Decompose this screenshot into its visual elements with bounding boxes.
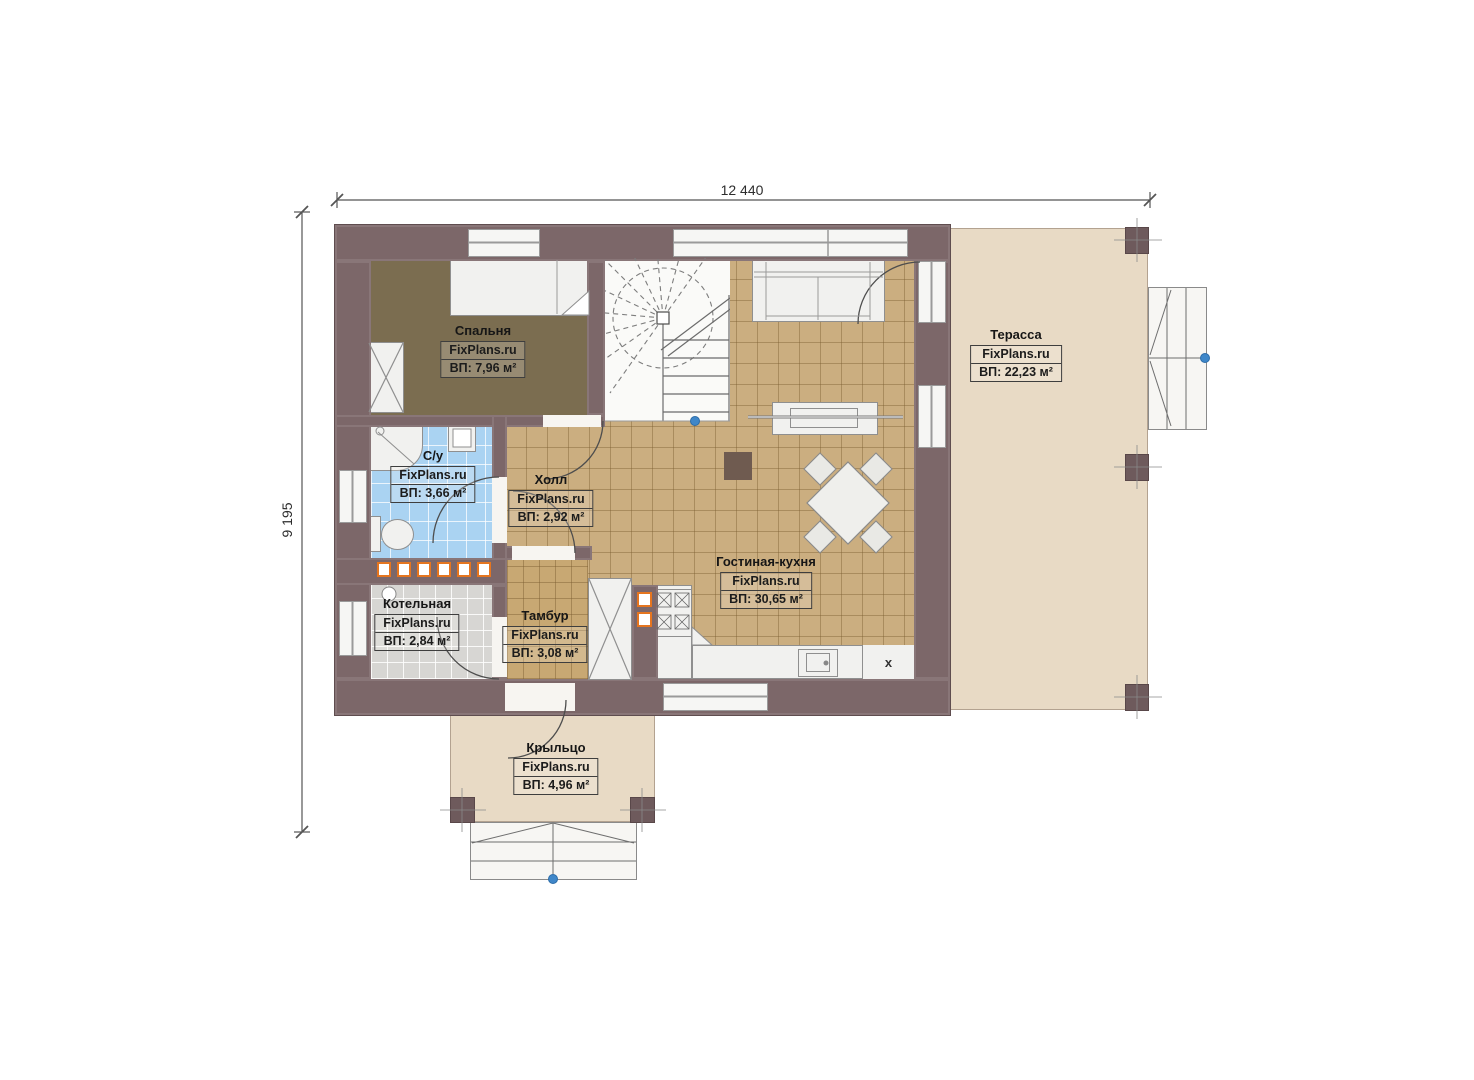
room-area: ВП: 2,84 м² (375, 633, 458, 650)
bathroom-door-gap (492, 477, 507, 543)
kitchen-sink-basin (806, 653, 830, 672)
dimension-height: 9 195 (279, 502, 295, 537)
wall-bottom (335, 679, 950, 715)
room-info-box: FixPlans.ru ВП: 4,96 м² (513, 758, 598, 795)
fridge-marker: x (862, 645, 914, 679)
room-label-living-kitchen: Гостиная-кухня FixPlans.ru ВП: 30,65 м² (716, 554, 816, 609)
room-info-box: FixPlans.ru ВП: 22,23 м² (970, 345, 1062, 382)
entrance-door-gap (505, 683, 575, 711)
dimension-width: 12 440 (721, 182, 764, 198)
porch-stairs (470, 822, 637, 880)
radiator-segment (637, 592, 652, 607)
window (663, 683, 768, 711)
room-brand: FixPlans.ru (721, 573, 811, 591)
radiator-segment (417, 562, 431, 577)
room-area: ВП: 3,66 м² (391, 485, 474, 502)
room-name: Тамбур (521, 608, 568, 623)
room-label-terrace: Терасса FixPlans.ru ВП: 22,23 м² (970, 327, 1062, 382)
room-name: С/у (423, 448, 443, 463)
room-label-bathroom: С/у FixPlans.ru ВП: 3,66 м² (390, 448, 475, 503)
room-name: Терасса (990, 327, 1042, 342)
bed (450, 258, 590, 316)
room-info-box: FixPlans.ru ВП: 2,92 м² (508, 490, 593, 527)
room-info-box: FixPlans.ru ВП: 3,66 м² (390, 466, 475, 503)
window (468, 229, 540, 257)
room-area: ВП: 4,96 м² (514, 777, 597, 794)
floor-hatch (724, 452, 752, 480)
fridge-marker-label: x (885, 655, 892, 670)
room-label-bedroom: Спальня FixPlans.ru ВП: 7,96 м² (440, 323, 525, 378)
room-name: Спальня (455, 323, 511, 338)
room-info-box: FixPlans.ru ВП: 3,08 м² (502, 626, 587, 663)
terrace-door-leaf (918, 261, 946, 323)
terrace-stairs (1148, 287, 1207, 430)
window (339, 601, 367, 656)
window (339, 470, 367, 523)
terrace-column (1126, 685, 1148, 710)
room-area: ВП: 22,23 м² (971, 364, 1061, 381)
room-area: ВП: 7,96 м² (441, 360, 524, 377)
room-label-hall: Холл FixPlans.ru ВП: 2,92 м² (508, 472, 593, 527)
radiator-segment (437, 562, 451, 577)
room-brand: FixPlans.ru (509, 491, 592, 509)
room-brand: FixPlans.ru (375, 615, 458, 633)
room-brand: FixPlans.ru (441, 342, 524, 360)
sofa (752, 260, 885, 322)
room-name: Холл (535, 472, 568, 487)
room-brand: FixPlans.ru (971, 346, 1061, 364)
room-info-box: FixPlans.ru ВП: 30,65 м² (720, 572, 812, 609)
stairwell (605, 258, 730, 421)
porch-column (451, 798, 474, 822)
radiator-segment (477, 562, 491, 577)
room-label-vestibule: Тамбур FixPlans.ru ВП: 3,08 м² (502, 608, 587, 663)
room-label-boiler: Котельная FixPlans.ru ВП: 2,84 м² (374, 596, 459, 651)
radiator-segment (397, 562, 411, 577)
stove (654, 589, 692, 637)
bedroom-door-gap (543, 415, 601, 427)
room-area: ВП: 3,08 м² (503, 645, 586, 662)
terrace-slab (950, 228, 1148, 710)
room-area: ВП: 30,65 м² (721, 591, 811, 608)
room-info-box: FixPlans.ru ВП: 7,96 м² (440, 341, 525, 378)
window (918, 385, 946, 448)
radiator-segment (637, 612, 652, 627)
terrace-column (1126, 455, 1148, 480)
window (673, 229, 908, 257)
room-brand: FixPlans.ru (503, 627, 586, 645)
room-label-porch: Крыльцо FixPlans.ru ВП: 4,96 м² (513, 740, 598, 795)
room-name: Крыльцо (526, 740, 585, 755)
room-name: Котельная (383, 596, 451, 611)
room-brand: FixPlans.ru (514, 759, 597, 777)
terrace-column (1126, 228, 1148, 253)
vestibule-hall-door-gap (512, 546, 575, 560)
room-area: ВП: 2,92 м² (509, 509, 592, 526)
porch-column (631, 798, 654, 822)
wall-right (914, 261, 950, 679)
floor-plan: x Спальня FixPlans.ru ВП: 7,96 м² (0, 0, 1474, 1080)
radiator-segment (377, 562, 391, 577)
room-name: Гостиная-кухня (716, 554, 816, 569)
toilet-bowl (381, 519, 414, 550)
room-brand: FixPlans.ru (391, 467, 474, 485)
partition-bedroom-east (587, 261, 605, 415)
tv-stand-inner (790, 408, 858, 428)
wardrobe (368, 342, 404, 413)
radiator-segment (457, 562, 471, 577)
room-info-box: FixPlans.ru ВП: 2,84 м² (374, 614, 459, 651)
wardrobe (588, 578, 632, 680)
